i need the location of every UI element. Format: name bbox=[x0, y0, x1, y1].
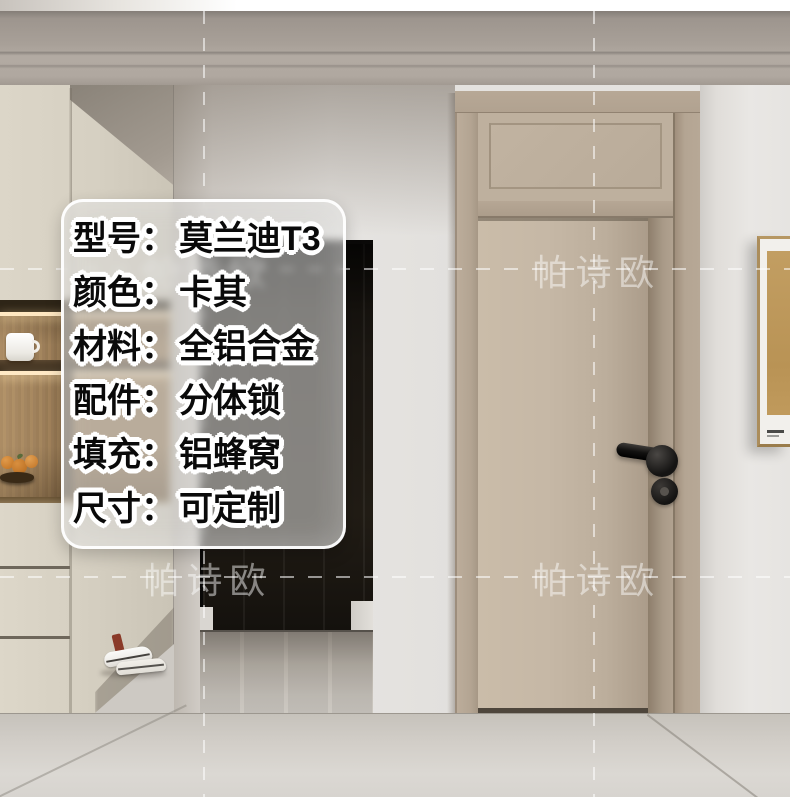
spec-value: 全铝合金 bbox=[179, 328, 315, 366]
baseboard-notch bbox=[200, 607, 213, 630]
watermark-dashed-line-vertical bbox=[593, 11, 595, 797]
corridor-floor-reflection bbox=[200, 630, 373, 713]
spec-value: 卡其 bbox=[179, 274, 247, 312]
spec-label: 配件： bbox=[73, 382, 175, 420]
transom-inner-panel bbox=[489, 123, 662, 189]
spec-row-material: 材料：全铝合金 bbox=[73, 330, 337, 364]
spec-row-color: 颜色：卡其 bbox=[73, 276, 337, 310]
spec-label: 尺寸： bbox=[73, 490, 175, 528]
ceiling-with-molding bbox=[0, 11, 790, 85]
door-frame-top bbox=[455, 91, 700, 113]
drawer-gap bbox=[0, 566, 70, 569]
artwork-caption-line bbox=[767, 430, 784, 433]
door-handle-rosette bbox=[646, 445, 678, 477]
top-white-margin bbox=[0, 0, 790, 11]
spec-row-model: 型号：莫兰迪T3 bbox=[73, 222, 337, 256]
baseboard-notch bbox=[351, 601, 373, 630]
brand-watermark: 帕诗欧 bbox=[143, 552, 272, 604]
spec-value: 铝蜂窝 bbox=[179, 436, 281, 474]
aluminum-door-assembly bbox=[455, 91, 700, 713]
product-photo-stage: 帕诗欧 帕诗欧 帕诗欧 帕诗欧 型号：莫兰迪T3 颜色：卡其 材料：全铝合金 配… bbox=[0, 0, 790, 800]
spec-value: 可定制 bbox=[179, 490, 281, 528]
artwork-print bbox=[767, 251, 790, 415]
door-frame-right bbox=[673, 113, 700, 713]
artwork-caption-line bbox=[767, 435, 779, 437]
brand-watermark: 帕诗欧 bbox=[532, 552, 661, 604]
spec-label: 填充： bbox=[73, 436, 175, 474]
spec-label: 材料： bbox=[73, 328, 175, 366]
spec-row-filling: 填充：铝蜂窝 bbox=[73, 438, 337, 472]
ceiling-shadow-wedge bbox=[70, 85, 173, 190]
drawer-gap bbox=[0, 636, 70, 639]
door-frame-shadow bbox=[447, 93, 455, 713]
fruit-tray bbox=[0, 472, 34, 483]
brand-watermark: 帕诗欧 bbox=[532, 244, 661, 296]
spec-row-hardware: 配件：分体锁 bbox=[73, 384, 337, 418]
product-spec-panel: 型号：莫兰迪T3 颜色：卡其 材料：全铝合金 配件：分体锁 填充：铝蜂窝 尺寸：… bbox=[61, 199, 346, 549]
lock-keyhole bbox=[660, 487, 669, 496]
fruit bbox=[25, 455, 38, 468]
door-frame-left bbox=[455, 113, 478, 713]
spec-label: 型号： bbox=[73, 220, 175, 258]
spec-label: 颜色： bbox=[73, 274, 175, 312]
spec-value: 分体锁 bbox=[179, 382, 281, 420]
white-mug bbox=[6, 333, 34, 361]
transom-rail bbox=[478, 201, 673, 218]
spec-value: 莫兰迪T3 bbox=[179, 220, 321, 258]
spec-row-size: 尺寸：可定制 bbox=[73, 492, 337, 526]
watermark-dashed-line-horizontal bbox=[0, 576, 790, 578]
transom-panel bbox=[478, 113, 673, 201]
tile-floor bbox=[0, 713, 790, 797]
